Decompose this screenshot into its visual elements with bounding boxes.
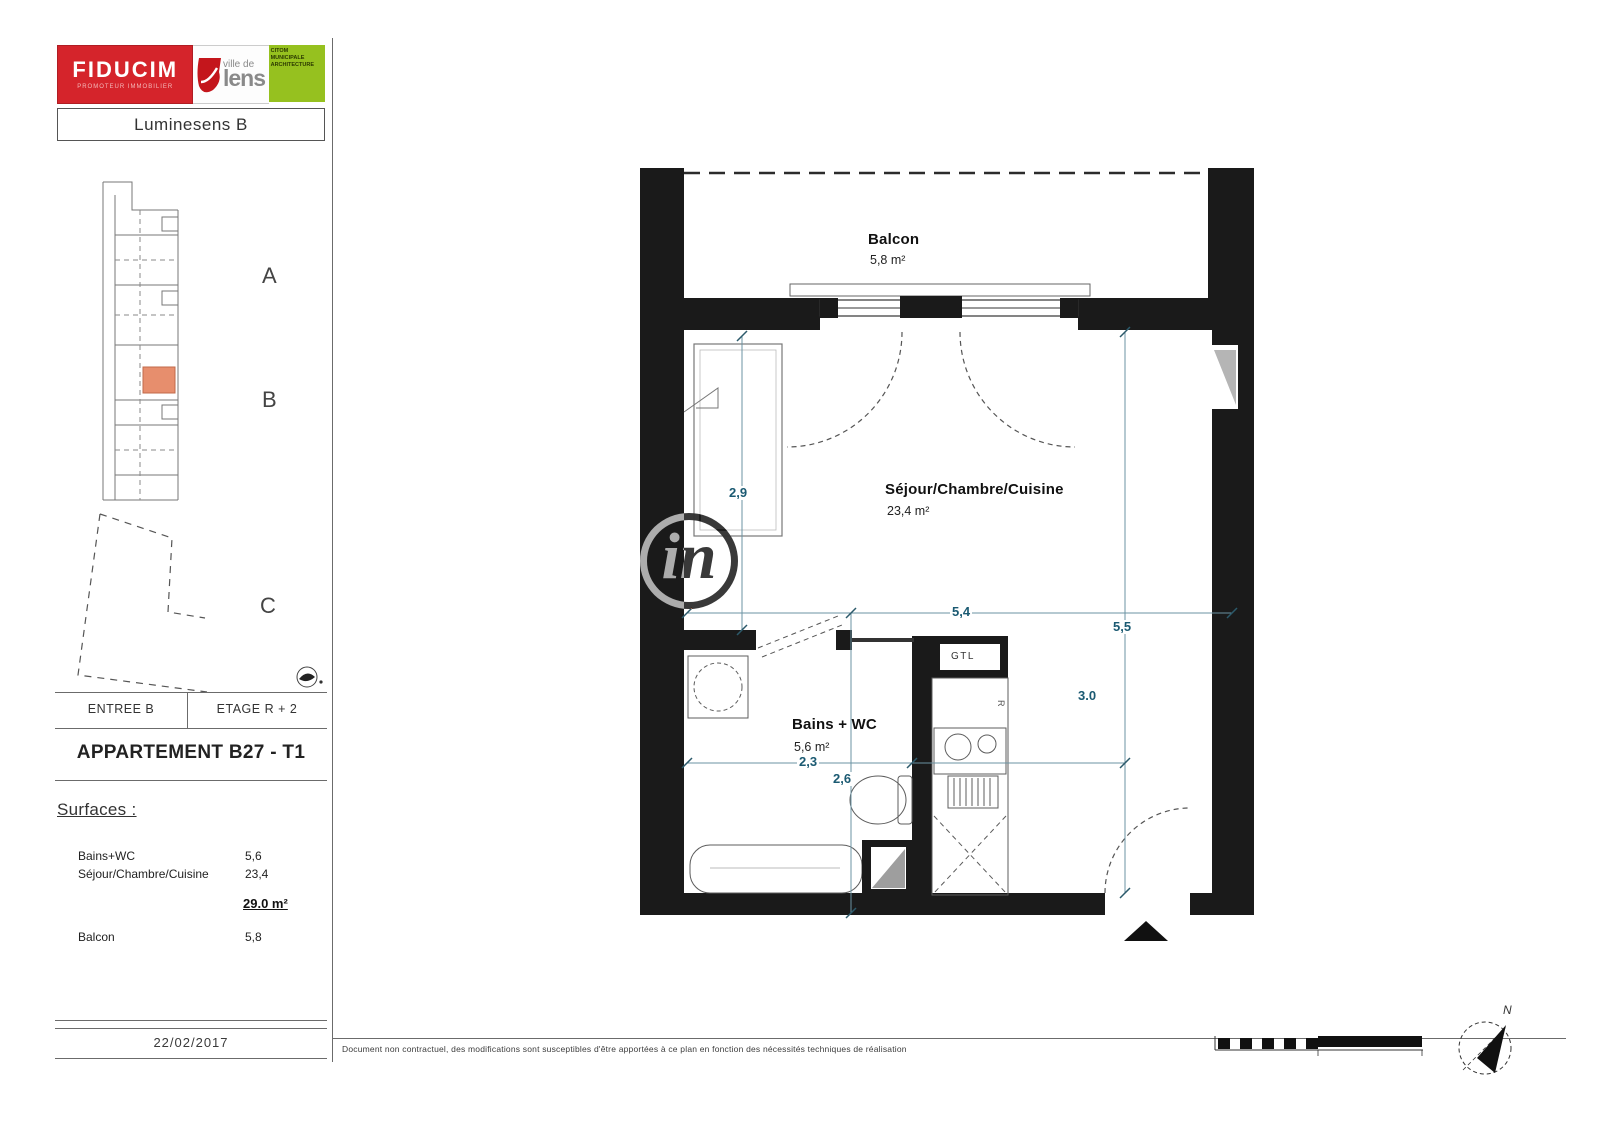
french-window [787,284,1090,447]
sink-bowl-large [945,734,971,760]
dimension-label: 5,5 [1111,620,1133,634]
washing-machine [688,656,748,718]
kitchen-counter [932,678,1008,895]
corner-diagonal-mark [684,388,718,412]
front-wall-right [1078,298,1212,330]
bathtub [690,845,862,893]
bottom-wall-left [640,893,1105,915]
bathroom-door-leaf [758,616,838,648]
bathroom-label: Bains + WC [792,716,877,733]
front-wall-left [684,298,820,330]
dimension-label: 3.0 [1076,689,1098,703]
living-room-label: Séjour/Chambre/Cuisine [885,481,1064,498]
dimension-label: 2,9 [727,486,749,500]
appliance-space-x [934,816,1006,893]
dimension-label: 5,4 [950,605,972,619]
floor-plan-drawing: R [0,0,1600,1131]
dimension-ticks [682,327,1237,918]
floorplan-document-page: FIDUCIM PROMOTEUR IMMOBILIER ville de le… [0,0,1600,1131]
living-room-area: 23,4 m² [887,504,929,518]
entrance-door-swing-arc [1105,808,1190,893]
entrance-marker-triangle [1124,921,1168,941]
north-label: N [1503,1003,1512,1017]
bathroom-door-leaf [762,625,842,657]
north-compass: N [1459,1003,1512,1074]
appliance-space-x [934,816,1006,893]
bottom-wall-right [1190,893,1254,915]
gtl-closet-label: GTL [951,651,975,662]
sink-bowl-small [978,735,996,753]
dimension-lines [687,332,1232,913]
fridge-label: R [996,700,1006,707]
dimension-label: 2,6 [831,772,853,786]
toilet-tank [898,776,912,824]
compass-needle [1477,1025,1506,1073]
right-balcony-pillar [1208,168,1254,298]
dimension-label: 2,3 [797,755,819,769]
balcony-area: 5,8 m² [870,253,905,267]
sejour-closet-outline [684,344,782,536]
thin-partition [852,638,914,642]
door-swing-arc-left [787,332,902,447]
door-swing-arc-right [960,332,1075,447]
balcony-label: Balcon [868,231,919,248]
washing-machine-drum [694,663,742,711]
kitchen-strip [932,678,1008,895]
bathroom-area: 5,6 m² [794,740,829,754]
scale-bar [1215,1036,1423,1056]
watermark-logo: in [640,513,738,609]
